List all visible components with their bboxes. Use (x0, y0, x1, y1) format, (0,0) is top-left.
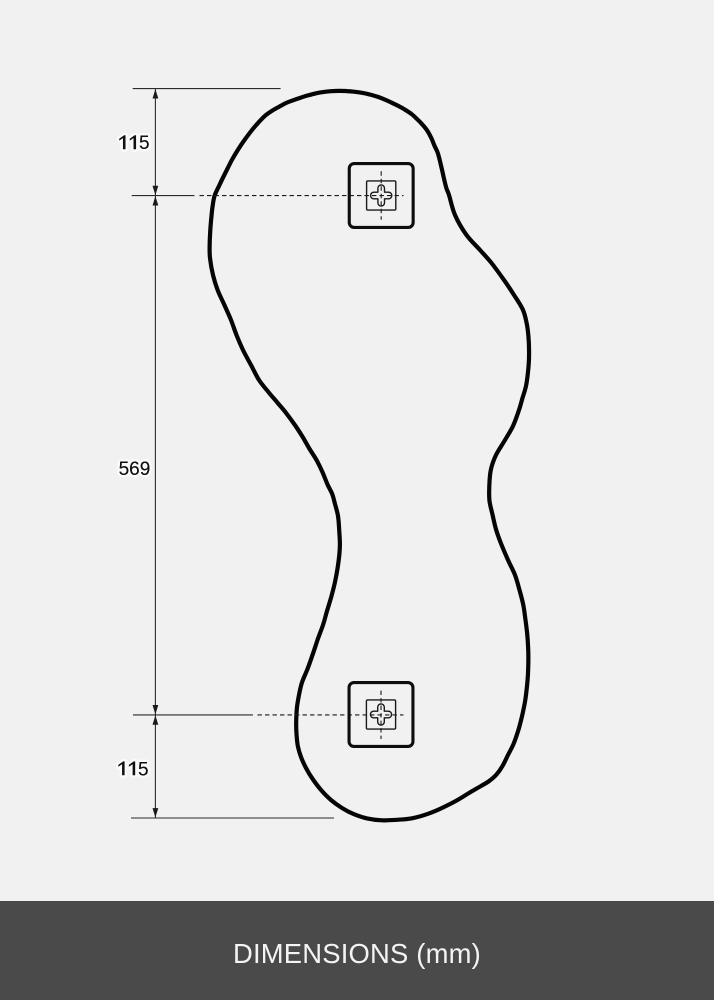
svg-text:5: 5 (138, 759, 149, 780)
svg-text:569: 569 (119, 459, 151, 480)
svg-text:5: 5 (139, 133, 150, 154)
